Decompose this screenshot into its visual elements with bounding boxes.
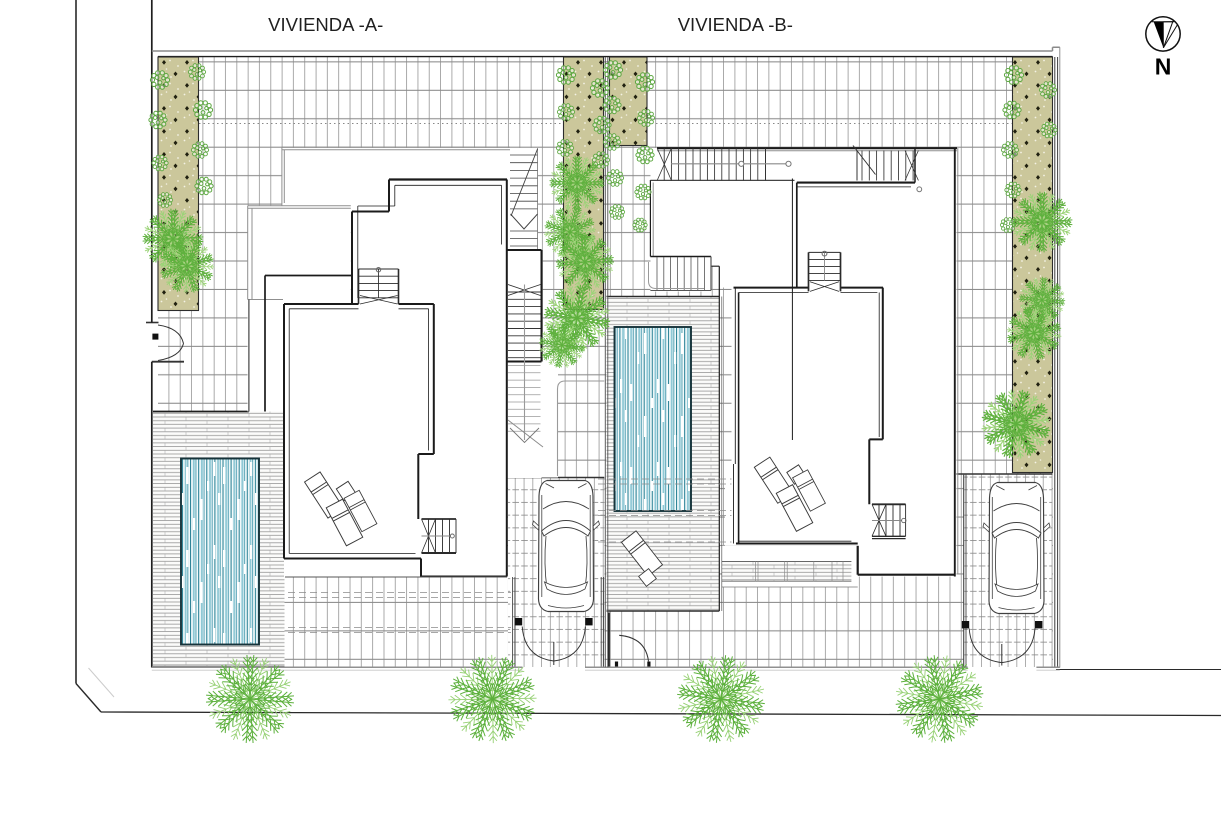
- svg-text:VIVIENDA -B-: VIVIENDA -B-: [678, 14, 793, 35]
- svg-text:N: N: [1155, 54, 1172, 80]
- svg-text:VIVIENDA -A-: VIVIENDA -A-: [268, 14, 383, 35]
